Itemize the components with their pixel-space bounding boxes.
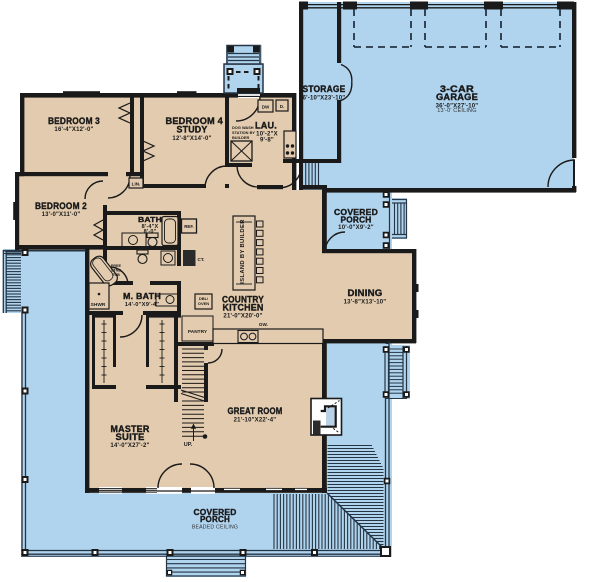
svg-text:ISLAND BY BUILDER: ISLAND BY BUILDER [240,219,246,284]
svg-text:13'-8"X13'-10": 13'-8"X13'-10" [344,300,387,306]
svg-text:OVEN: OVEN [198,301,209,306]
svg-text:BUILDER: BUILDER [232,135,249,140]
svg-text:CT.: CT. [198,257,205,262]
svg-text:LAU.: LAU. [255,121,277,131]
svg-text:14'-0"X9'-4": 14'-0"X9'-4" [125,302,160,308]
svg-text:8'-0": 8'-0" [144,229,157,235]
svg-text:12'-8"X14'-0": 12'-8"X14'-0" [172,136,211,142]
svg-text:16'-4"X12'-0": 16'-4"X12'-0" [54,127,93,133]
svg-text:UP.: UP. [184,442,193,448]
svg-text:BEDROOM 3: BEDROOM 3 [48,116,100,126]
svg-text:STORAGE: STORAGE [303,84,346,94]
svg-text:PANTRY: PANTRY [188,329,208,335]
svg-text:BEDROOM 2: BEDROOM 2 [35,201,87,211]
svg-text:SUITE: SUITE [116,432,145,442]
svg-text:SHWR: SHWR [91,302,106,308]
svg-text:21'-0"X20'-0": 21'-0"X20'-0" [223,314,262,320]
svg-text:6'-10"X23'-10": 6'-10"X23'-10" [303,96,346,102]
svg-text:9'-8": 9'-8" [260,138,274,144]
svg-text:14'-0"X27'-2": 14'-0"X27'-2" [110,443,149,449]
svg-text:DW.: DW. [259,322,268,327]
svg-text:PORCH: PORCH [200,515,230,524]
svg-text:KITCHEN: KITCHEN [223,303,264,313]
svg-text:10'-0"X9'-2": 10'-0"X9'-2" [338,225,374,231]
svg-text:13'-0' CEILING: 13'-0' CEILING [437,108,476,114]
svg-text:STUDY: STUDY [177,125,208,135]
svg-text:LIN.: LIN. [132,182,141,187]
svg-text:GREAT ROOM: GREAT ROOM [228,406,283,417]
svg-text:M. BATH: M. BATH [123,292,161,301]
svg-text:GARAGE: GARAGE [436,92,478,102]
svg-text:REF.: REF. [184,224,194,229]
svg-text:PORCH: PORCH [341,215,372,225]
svg-text:DINING: DINING [348,288,383,298]
svg-text:TUB: TUB [112,273,120,277]
svg-text:13'-0"X11'-0": 13'-0"X11'-0" [42,212,81,218]
svg-text:DW: DW [262,105,270,110]
svg-text:BATH: BATH [138,215,162,224]
svg-text:BEADED CEILING: BEADED CEILING [192,525,238,531]
svg-text:STND: STND [111,269,122,273]
svg-text:21'-10"X22'-4": 21'-10"X22'-4" [234,418,277,424]
svg-text:FREE: FREE [111,264,122,268]
svg-text:D.: D. [280,104,285,109]
